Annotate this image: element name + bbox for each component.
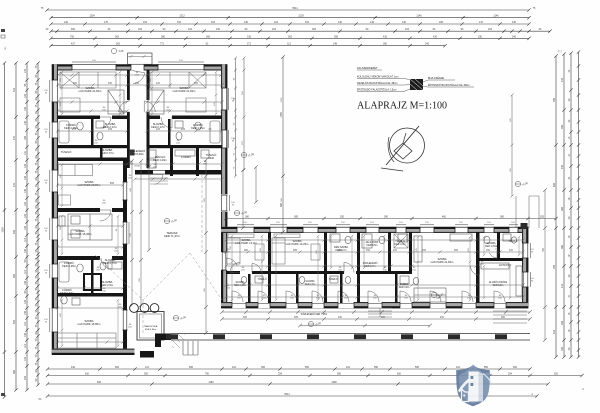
svg-text:785: 785 — [553, 97, 556, 102]
svg-text:130: 130 — [24, 120, 27, 125]
svg-text:620: 620 — [397, 373, 402, 376]
svg-text:380: 380 — [245, 216, 250, 219]
svg-text:KER 2,77m: KER 2,77m — [60, 291, 75, 295]
svg-text:120: 120 — [509, 249, 514, 252]
svg-text:KER 4,0m: KER 4,0m — [395, 243, 406, 246]
svg-text:104: 104 — [272, 28, 277, 31]
svg-text:170: 170 — [479, 21, 484, 24]
svg-text:595: 595 — [110, 182, 115, 185]
svg-text:385: 385 — [294, 316, 299, 319]
svg-text:KER 4,35m: KER 4,35m — [191, 126, 206, 130]
svg-text:120: 120 — [393, 249, 398, 252]
svg-text:565: 565 — [415, 366, 420, 369]
svg-text:180: 180 — [561, 346, 564, 351]
svg-text:SLOZBA: SLOZBA — [235, 281, 245, 284]
svg-text:LAK PARK 15,80m: LAK PARK 15,80m — [78, 322, 101, 326]
svg-text:SLOZBA: SLOZBA — [305, 280, 315, 283]
svg-text:460: 460 — [13, 229, 16, 234]
svg-text:380: 380 — [561, 206, 564, 211]
svg-text:GLOZÓ-FŐZŐKE: GLOZÓ-FŐZŐKE — [489, 281, 508, 284]
svg-text:810: 810 — [85, 373, 90, 376]
svg-text:360: 360 — [206, 35, 211, 38]
svg-text:LAK PARK 21,84m: LAK PARK 21,84m — [431, 260, 454, 264]
svg-text:100: 100 — [24, 310, 27, 315]
svg-text:240: 240 — [338, 316, 343, 319]
svg-text:1755: 1755 — [281, 97, 283, 103]
svg-text:120: 120 — [24, 299, 27, 304]
svg-text:110: 110 — [24, 237, 27, 241]
svg-text:1146: 1146 — [493, 15, 499, 18]
svg-text:460: 460 — [440, 316, 445, 319]
svg-text:KER 71,37m: KER 71,37m — [164, 234, 181, 238]
svg-text:130: 130 — [24, 225, 27, 230]
svg-text:472: 472 — [13, 182, 16, 187]
svg-text:365: 365 — [73, 82, 78, 85]
svg-text:1050: 1050 — [2, 227, 5, 233]
svg-text:362: 362 — [312, 28, 317, 31]
svg-text:BLVLASÉARE: BLVLASÉARE — [428, 77, 444, 80]
svg-text:310: 310 — [247, 35, 252, 38]
svg-text:1146: 1146 — [416, 15, 422, 18]
svg-text:154: 154 — [211, 21, 216, 24]
svg-text:KER 8,5m: KER 8,5m — [367, 244, 378, 247]
svg-text:120: 120 — [24, 93, 27, 98]
svg-text:KER 6,7m: KER 6,7m — [365, 265, 376, 268]
svg-text:790: 790 — [553, 264, 556, 269]
svg-text:ALAPRAJZ M=1:100: ALAPRAJZ M=1:100 — [357, 100, 447, 112]
svg-text:390: 390 — [384, 216, 389, 219]
svg-text:KER 2,3m: KER 2,3m — [305, 284, 316, 286]
svg-text:148: 148 — [333, 43, 338, 46]
svg-text:380: 380 — [161, 35, 166, 38]
svg-text:550: 550 — [484, 366, 489, 369]
svg-text:560: 560 — [280, 202, 283, 207]
svg-text:LAK PARK 23,84m: LAK PARK 23,84m — [78, 183, 101, 187]
svg-text:380: 380 — [501, 316, 506, 319]
svg-text:271: 271 — [247, 43, 252, 46]
svg-text:1755: 1755 — [280, 112, 283, 118]
svg-text:410: 410 — [561, 283, 564, 288]
svg-text:771: 771 — [160, 43, 165, 46]
svg-text:790: 790 — [542, 247, 545, 252]
svg-text:693: 693 — [115, 366, 120, 369]
svg-text:115: 115 — [24, 321, 27, 325]
svg-text:1254: 1254 — [89, 15, 95, 18]
svg-text:KER 3,9m: KER 3,9m — [399, 287, 410, 289]
svg-text:410: 410 — [383, 35, 388, 38]
svg-text:| | |: | | | — [558, 49, 562, 53]
svg-text:LAK PARK 13,25m: LAK PARK 13,25m — [286, 242, 309, 246]
svg-text:550: 550 — [374, 366, 379, 369]
svg-text:846: 846 — [97, 381, 102, 384]
svg-text:TÜSZLŐ: TÜSZLŐ — [257, 278, 266, 281]
svg-text:790: 790 — [205, 373, 210, 376]
svg-text:FALSZERKEZET: FALSZERKEZET — [357, 66, 378, 70]
svg-text:365: 365 — [261, 366, 266, 369]
svg-text:545: 545 — [13, 319, 16, 324]
svg-text:385: 385 — [294, 216, 299, 219]
svg-text:FÜRDŐ: FÜRDŐ — [400, 283, 408, 286]
svg-text:KER 4,20m: KER 4,20m — [153, 158, 168, 162]
svg-text:362: 362 — [116, 43, 121, 46]
svg-text:120: 120 — [24, 163, 27, 168]
svg-text:460: 460 — [71, 28, 76, 31]
svg-text:330: 330 — [108, 82, 113, 85]
svg-text:242: 242 — [64, 21, 69, 24]
svg-text:140: 140 — [370, 21, 375, 24]
svg-text:300: 300 — [513, 366, 518, 369]
svg-text:100: 100 — [135, 82, 140, 85]
svg-text:148: 148 — [24, 106, 27, 111]
svg-text:205: 205 — [540, 216, 545, 219]
svg-text:440: 440 — [561, 77, 564, 82]
svg-text:472: 472 — [13, 135, 16, 140]
svg-text:130: 130 — [512, 21, 517, 24]
svg-text:385: 385 — [293, 249, 298, 252]
svg-text:380: 380 — [13, 369, 16, 374]
svg-text:KER 2,18m: KER 2,18m — [234, 285, 246, 287]
svg-text:366: 366 — [454, 249, 459, 252]
svg-text:KER 4,35m: KER 4,35m — [64, 126, 79, 130]
svg-text:120: 120 — [156, 82, 161, 85]
svg-text:135: 135 — [24, 188, 27, 193]
svg-text:695: 695 — [189, 366, 194, 369]
svg-text:130: 130 — [24, 175, 27, 180]
svg-text:KÖZL: KÖZL — [135, 165, 141, 168]
svg-text:104: 104 — [405, 28, 410, 31]
svg-text:115: 115 — [24, 269, 27, 273]
svg-text:ÉPITENDŐ BLOKKTÉGLA FAL 38cm: ÉPITENDŐ BLOKKTÉGLA FAL 38cm — [428, 84, 470, 87]
svg-text:170: 170 — [24, 68, 27, 73]
svg-text:175: 175 — [104, 21, 109, 24]
svg-text:510: 510 — [13, 87, 16, 92]
svg-text:241: 241 — [232, 366, 237, 369]
svg-text:550: 550 — [305, 366, 310, 369]
svg-text:1212: 1212 — [179, 15, 185, 18]
svg-text:460: 460 — [442, 216, 447, 219]
svg-text:360: 360 — [383, 43, 388, 46]
svg-text:380: 380 — [500, 216, 505, 219]
svg-text:KER 4,77m: KER 4,77m — [103, 261, 118, 265]
svg-text:KER: KER — [208, 156, 214, 160]
svg-text:160: 160 — [486, 249, 491, 252]
svg-text:240: 240 — [512, 35, 517, 38]
svg-text:KER 2,17m: KER 2,17m — [103, 125, 118, 129]
svg-text:104: 104 — [188, 28, 193, 31]
svg-text:250: 250 — [340, 216, 345, 219]
svg-text:240: 240 — [425, 43, 430, 46]
svg-text:KER 2,5m: KER 2,5m — [101, 283, 114, 287]
svg-text:120: 120 — [24, 213, 27, 218]
svg-text:120: 120 — [24, 201, 27, 206]
svg-text:LAK PARK 21,84m: LAK PARK 21,84m — [173, 89, 196, 93]
svg-text:254: 254 — [508, 373, 513, 376]
svg-text:140: 140 — [244, 21, 249, 24]
svg-text:2129: 2129 — [298, 15, 304, 18]
svg-text:254: 254 — [278, 373, 283, 376]
svg-text:ACTIKONY: ACTIKONY — [499, 264, 512, 267]
svg-text:150: 150 — [366, 249, 371, 252]
svg-text:194: 194 — [138, 28, 143, 31]
svg-text:330: 330 — [478, 35, 483, 38]
svg-text:380: 380 — [243, 316, 248, 319]
svg-text:330: 330 — [561, 320, 564, 325]
svg-text:TÜSZLŐ: TÜSZLŐ — [508, 240, 517, 243]
svg-text:115: 115 — [24, 343, 27, 347]
svg-text:100: 100 — [24, 332, 27, 337]
svg-text:112: 112 — [287, 43, 291, 46]
svg-text:140: 140 — [338, 21, 343, 24]
svg-text:350: 350 — [144, 373, 149, 376]
svg-text:1180: 1180 — [208, 381, 214, 384]
svg-text:450: 450 — [561, 164, 564, 169]
svg-text:362: 362 — [115, 35, 120, 38]
svg-text:SLOZBA: SLOZBA — [486, 242, 496, 245]
svg-text:121: 121 — [145, 366, 150, 369]
svg-text:241: 241 — [456, 366, 461, 369]
svg-text:100: 100 — [24, 280, 27, 285]
svg-text:KER 8,66m: KER 8,66m — [130, 152, 145, 156]
svg-text:427: 427 — [71, 43, 76, 46]
svg-text:104: 104 — [488, 28, 493, 31]
svg-text:590: 590 — [337, 373, 342, 376]
svg-text:155: 155 — [422, 249, 427, 252]
svg-text:154: 154 — [143, 21, 148, 24]
svg-text:390: 390 — [381, 316, 386, 319]
svg-text:390: 390 — [334, 35, 339, 38]
svg-text:186: 186 — [439, 21, 444, 24]
svg-text:131: 131 — [24, 150, 27, 155]
svg-text:510: 510 — [553, 329, 556, 334]
svg-text:362: 362 — [288, 35, 293, 38]
svg-text:KER 8,0m: KER 8,0m — [493, 285, 504, 287]
svg-text:5541: 5541 — [284, 393, 290, 396]
svg-text:140: 140 — [24, 356, 27, 361]
svg-text:KER 0,77m: KER 0,77m — [100, 151, 115, 155]
svg-text:KÖZLEKEDŐ KER 7,35m: KÖZLEKEDŐ KER 7,35m — [301, 313, 328, 316]
svg-text:241: 241 — [346, 366, 351, 369]
svg-text:KER 2,17m: KER 2,17m — [151, 125, 166, 129]
svg-text:350: 350 — [561, 124, 564, 129]
svg-text:410: 410 — [433, 35, 438, 38]
svg-text:125: 125 — [181, 128, 186, 131]
svg-text:122: 122 — [274, 21, 279, 24]
svg-text:ÉPŻTENDŐ FALAZÓTÉGLA 1,5cm: ÉPŻTENDŐ FALAZÓTÉGLA 1,5cm — [357, 89, 396, 92]
svg-text:380: 380 — [244, 249, 249, 252]
svg-text:520: 520 — [554, 373, 559, 376]
svg-text:LAK PARK 15,36m: LAK PARK 15,36m — [69, 232, 92, 236]
svg-text:KER 4,7m: KER 4,7m — [336, 249, 347, 252]
svg-text:TÜSZLŐ: TÜSZLŐ — [328, 278, 337, 281]
svg-text:2,08: 2,08 — [119, 50, 124, 53]
svg-text:140: 140 — [402, 21, 407, 24]
svg-text:390: 390 — [13, 273, 16, 278]
svg-text:KER 4,96m: KER 4,96m — [145, 329, 156, 331]
svg-text:750: 750 — [70, 35, 75, 38]
svg-text:165: 165 — [24, 135, 27, 140]
svg-text:KER 4,35m: KER 4,35m — [62, 264, 77, 268]
svg-text:TRASZICSKA: TRASZICSKA — [144, 325, 158, 328]
svg-text:830: 830 — [553, 182, 556, 187]
svg-text:LAK PARK 13,0m: LAK PARK 13,0m — [235, 241, 257, 245]
svg-text:1280: 1280 — [331, 381, 337, 384]
svg-text:240: 240 — [24, 375, 27, 380]
svg-text:150: 150 — [216, 28, 221, 31]
svg-text:365: 365 — [194, 82, 199, 85]
svg-text:440: 440 — [71, 366, 76, 369]
svg-text:KÜLOLDALI VÉKONYVAKOLAT 1cm: KÜLOLDALI VÉKONYVAKOLAT 1cm — [357, 76, 398, 79]
svg-text:105: 105 — [24, 248, 27, 253]
svg-text:LAK PARK 21,84m: LAK PARK 21,84m — [79, 89, 102, 93]
svg-text:152: 152 — [177, 21, 182, 24]
svg-text:KEZELŐS BLOKKTÉGLA FAL 38cm: KEZELŐS BLOKKTÉGLA FAL 38cm — [357, 82, 397, 85]
svg-text:154: 154 — [305, 21, 310, 24]
svg-text:380: 380 — [561, 244, 564, 249]
svg-text:5541: 5541 — [292, 7, 298, 10]
